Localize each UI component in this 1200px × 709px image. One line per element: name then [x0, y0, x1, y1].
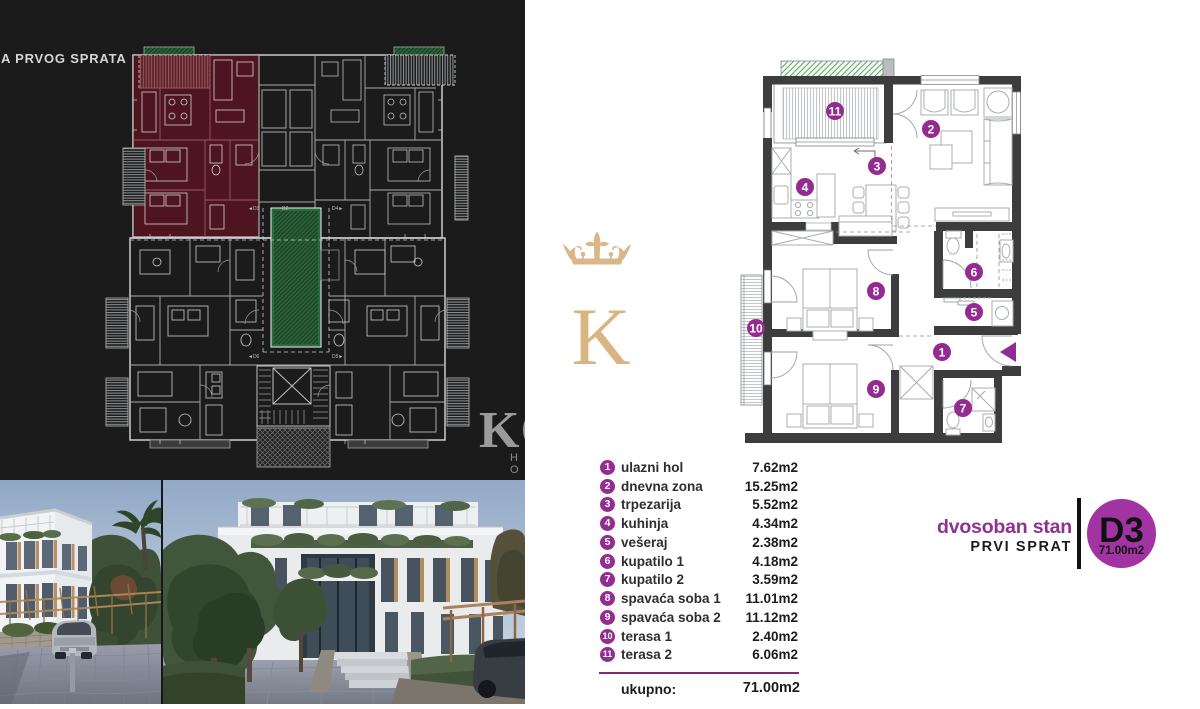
- svg-text:◄D3: ◄D3: [248, 206, 260, 212]
- svg-text:8: 8: [873, 285, 880, 299]
- svg-text:11: 11: [829, 105, 842, 119]
- svg-text:◄D6: ◄D6: [248, 354, 260, 360]
- svg-text:D5►: D5►: [332, 354, 343, 360]
- svg-text:6: 6: [971, 266, 978, 280]
- svg-text:D2: D2: [282, 206, 289, 212]
- svg-text:3: 3: [874, 160, 881, 174]
- svg-text:1: 1: [939, 346, 946, 360]
- svg-text:D4►: D4►: [332, 206, 343, 212]
- svg-text:2: 2: [928, 123, 935, 137]
- svg-text:4: 4: [802, 181, 809, 195]
- svg-text:7: 7: [960, 402, 967, 416]
- svg-text:5: 5: [971, 306, 978, 320]
- svg-text:9: 9: [873, 383, 880, 397]
- svg-text:10: 10: [749, 322, 763, 336]
